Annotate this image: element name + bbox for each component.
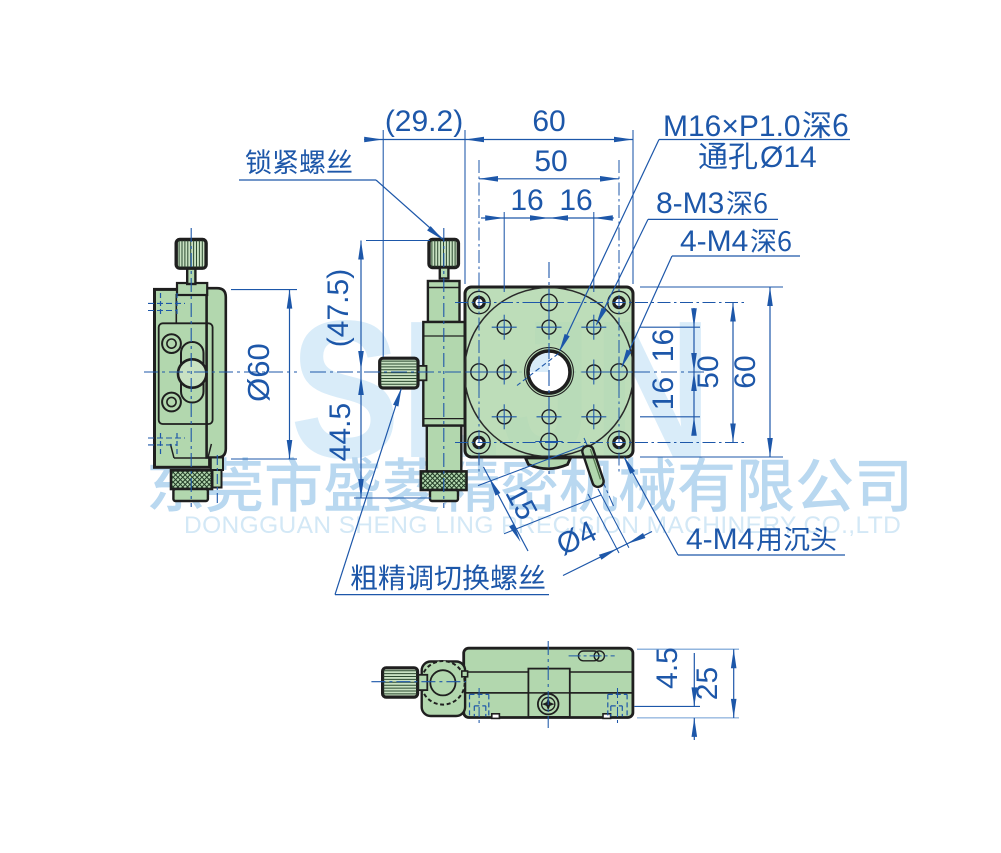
svg-text:60: 60	[729, 355, 762, 388]
svg-text:Ø60: Ø60	[241, 343, 276, 402]
svg-text:60: 60	[532, 105, 565, 138]
svg-text:4-M4: 4-M4	[686, 523, 754, 556]
svg-text:16: 16	[647, 377, 680, 410]
svg-text:16: 16	[559, 184, 592, 217]
svg-text:50: 50	[534, 145, 567, 178]
svg-text:(29.2): (29.2)	[385, 105, 463, 138]
svg-text:16: 16	[510, 184, 543, 217]
svg-text:(47.5): (47.5)	[322, 269, 355, 347]
svg-text:DONGGUAN SHENG LING PRECISION: DONGGUAN SHENG LING PRECISION MACHINERY …	[184, 512, 901, 539]
svg-text:M16×P1.0: M16×P1.0	[663, 110, 801, 143]
svg-text:4.5: 4.5	[651, 647, 684, 689]
svg-text:4-M4: 4-M4	[680, 225, 748, 258]
svg-text:25: 25	[691, 667, 724, 700]
svg-text:50: 50	[692, 355, 725, 388]
svg-text:Ø14: Ø14	[760, 141, 817, 174]
svg-text:8-M3: 8-M3	[656, 187, 724, 220]
svg-text:44.5: 44.5	[324, 403, 357, 461]
svg-text:16: 16	[647, 329, 680, 362]
